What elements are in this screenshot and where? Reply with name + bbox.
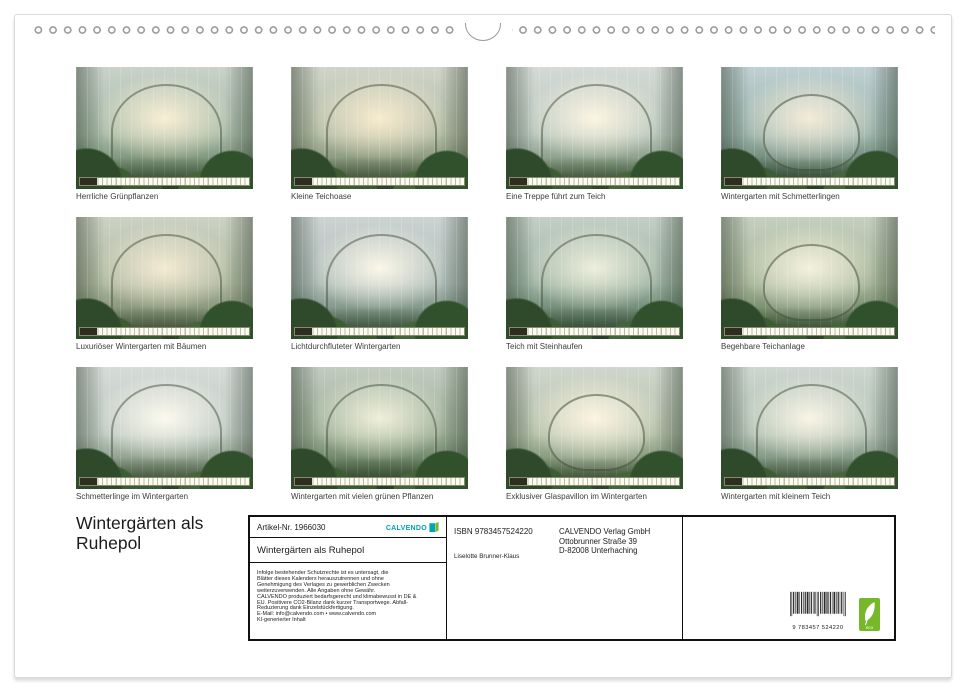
thumbnail: Exklusiver Glaspavillon im Wintergarten [506, 367, 683, 517]
thumbnail: Kleine Teichoase [291, 67, 468, 217]
calendar-back-page: Herrliche Grünpflanzen Kleine Teichoase … [14, 14, 952, 678]
wintergarten-photo [76, 67, 253, 189]
barcode-digits: 9 783457 524220 [790, 625, 846, 631]
thumbnail: Wintergarten mit Schmetterlingen [721, 67, 898, 217]
thumbnail: Teich mit Steinhaufen [506, 217, 683, 367]
thumbnail-caption: Wintergarten mit kleinem Teich [721, 492, 898, 502]
calvendo-logo-icon [429, 521, 439, 533]
wintergarten-photo [506, 67, 683, 189]
thumbnail-caption: Luxuriöser Wintergarten mit Bäumen [76, 342, 253, 352]
barcode-group: 9 783457 524220 eco [790, 584, 880, 631]
wintergarten-photo [76, 217, 253, 339]
thumbnail-caption: Exklusiver Glaspavillon im Wintergarten [506, 492, 683, 502]
thumbnail: Schmetterlinge im Wintergarten [76, 367, 253, 517]
ean-barcode: 9 783457 524220 [790, 584, 846, 631]
wintergarten-photo [721, 367, 898, 489]
calendar-strip [509, 477, 680, 486]
calendar-title: Wintergärten als Ruhepol [257, 545, 364, 556]
wintergarten-photo [291, 367, 468, 489]
thumbnail-caption: Teich mit Steinhaufen [506, 342, 683, 352]
wintergarten-photo [76, 367, 253, 489]
artikel-number: Artikel-Nr. 1966030 [257, 523, 325, 532]
wintergarten-photo [506, 217, 683, 339]
calendar-title-row: Wintergärten als Ruhepol [250, 538, 446, 563]
calendar-strip [294, 327, 465, 336]
thumbnail-caption: Lichtdurchfluteter Wintergarten [291, 342, 468, 352]
info-middle-column: ISBN 9783457524220 CALVENDO Verlag GmbH … [446, 517, 682, 639]
calendar-strip [509, 327, 680, 336]
page-title: Wintergärten als Ruhepol [76, 513, 203, 553]
calendar-strip [724, 477, 895, 486]
thumbnail: Eine Treppe führt zum Teich [506, 67, 683, 217]
thumbnail-caption: Begehbare Teichanlage [721, 342, 898, 352]
wintergarten-photo [291, 217, 468, 339]
publisher-street: Ottobrunner Straße 39 [559, 537, 650, 547]
calendar-strip [509, 177, 680, 186]
thumbnail: Wintergarten mit kleinem Teich [721, 367, 898, 517]
calendar-strip [724, 177, 895, 186]
publisher-address: CALVENDO Verlag GmbH Ottobrunner Straße … [559, 527, 650, 556]
thumbnail-caption: Kleine Teichoase [291, 192, 468, 202]
calendar-strip [724, 327, 895, 336]
thumbnail: Lichtdurchfluteter Wintergarten [291, 217, 468, 367]
info-right-column: 9 783457 524220 eco [682, 517, 894, 639]
artikel-row: Artikel-Nr. 1966030 CALVENDO [250, 517, 446, 538]
thumbnail-caption: Schmetterlinge im Wintergarten [76, 492, 253, 502]
page-title-line1: Wintergärten als [76, 513, 203, 533]
page-title-line2: Ruhepol [76, 533, 203, 553]
barcode-bars-icon [790, 584, 846, 624]
calendar-strip [294, 177, 465, 186]
thumbnail: Luxuriöser Wintergarten mit Bäumen [76, 217, 253, 367]
wintergarten-photo [291, 67, 468, 189]
thumbnail-caption: Wintergarten mit vielen grünen Pflanzen [291, 492, 468, 502]
thumbnail-caption: Eine Treppe führt zum Teich [506, 192, 683, 202]
legal-line: KI-generierter Inhalt [257, 618, 439, 624]
eco-logo: eco [859, 598, 880, 631]
wintergarten-photo [721, 67, 898, 189]
calendar-strip [79, 477, 250, 486]
thumbnail: Herrliche Grünpflanzen [76, 67, 253, 217]
publisher-name: CALVENDO Verlag GmbH [559, 527, 650, 537]
eco-label: eco [859, 625, 880, 630]
thumbnail-caption: Wintergarten mit Schmetterlingen [721, 192, 898, 202]
info-left-column: Artikel-Nr. 1966030 CALVENDO Wintergärte… [250, 517, 446, 639]
author-name: Liselotte Brunner-Klaus [454, 553, 519, 560]
thumbnail-caption: Herrliche Grünpflanzen [76, 192, 253, 202]
thumbnail-grid: Herrliche Grünpflanzen Kleine Teichoase … [76, 67, 898, 517]
thumbnail: Begehbare Teichanlage [721, 217, 898, 367]
calendar-strip [79, 177, 250, 186]
calvendo-logo-text: CALVENDO [386, 525, 427, 532]
isbn-text: ISBN 9783457524220 [454, 527, 533, 536]
wintergarten-photo [721, 217, 898, 339]
calvendo-logo: CALVENDO [386, 521, 439, 533]
product-info-box: Artikel-Nr. 1966030 CALVENDO Wintergärte… [248, 515, 896, 641]
calendar-strip [79, 327, 250, 336]
publisher-city: D-82008 Unterhaching [559, 546, 650, 556]
wintergarten-photo [506, 367, 683, 489]
legal-text: Infolge bestehender Schutzrechte ist es … [250, 563, 446, 639]
calendar-strip [294, 477, 465, 486]
thumbnail: Wintergarten mit vielen grünen Pflanzen [291, 367, 468, 517]
